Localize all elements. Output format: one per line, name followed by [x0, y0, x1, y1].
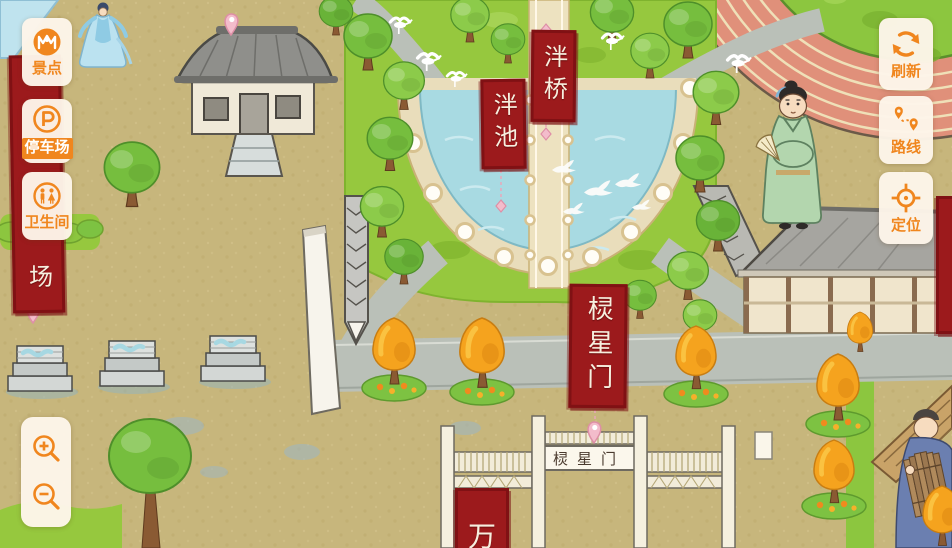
sidebar-item-label: 景点: [32, 61, 62, 78]
sidebar-item-parking[interactable]: 停车场: [22, 99, 72, 163]
toolbar-item-label: 刷新: [891, 64, 921, 81]
sidebar-item-label: 卫生间: [24, 215, 69, 232]
toolbar-item-label: 定位: [891, 218, 921, 235]
gate-plaque-label: 棂星门: [553, 450, 625, 468]
map-canvas[interactable]: 棂星门: [0, 0, 952, 548]
pan-pond-text: 泮池: [491, 92, 516, 156]
toolbar-item-refresh[interactable]: 刷新: [879, 18, 933, 90]
lingxing-gate-text: 棂星门: [584, 295, 611, 397]
zoom-out-button[interactable]: [30, 480, 62, 512]
toolbar-item-locate[interactable]: 定位: [879, 172, 933, 244]
zoom-in-button[interactable]: [30, 432, 62, 464]
route-icon: [889, 103, 923, 137]
toolbar-item-route[interactable]: 路线: [879, 96, 933, 164]
toolbar-item-label: 路线: [891, 140, 921, 157]
map-label-pan-pond[interactable]: 泮池: [480, 79, 526, 170]
parking-banner-text: 场: [26, 264, 51, 296]
scenic-spots-icon: [31, 26, 63, 58]
sidebar-item-scenic-spots[interactable]: 景点: [22, 18, 72, 86]
pan-bridge-text: 泮桥: [541, 44, 566, 108]
sidebar-item-restroom[interactable]: 卫生间: [22, 172, 72, 240]
sidebar-item-label: 停车场: [22, 138, 73, 159]
zoom-controls: [21, 417, 71, 527]
map-label-south-banner-partial[interactable]: 万: [455, 488, 509, 548]
zoom-out-icon: [30, 480, 62, 512]
south-banner-text: 万: [468, 523, 496, 548]
zoom-in-icon: [30, 432, 62, 464]
refresh-icon: [889, 27, 923, 61]
scenic-area-map-app: 棂星门: [0, 0, 952, 548]
map-label-lingxing-gate[interactable]: 棂星门: [568, 284, 627, 409]
locate-icon: [889, 181, 923, 215]
restroom-icon: [31, 180, 63, 212]
map-label-pan-bridge[interactable]: 泮桥: [531, 30, 577, 122]
parking-icon: [31, 103, 63, 135]
map-label-right-banner-partial[interactable]: [936, 196, 952, 334]
